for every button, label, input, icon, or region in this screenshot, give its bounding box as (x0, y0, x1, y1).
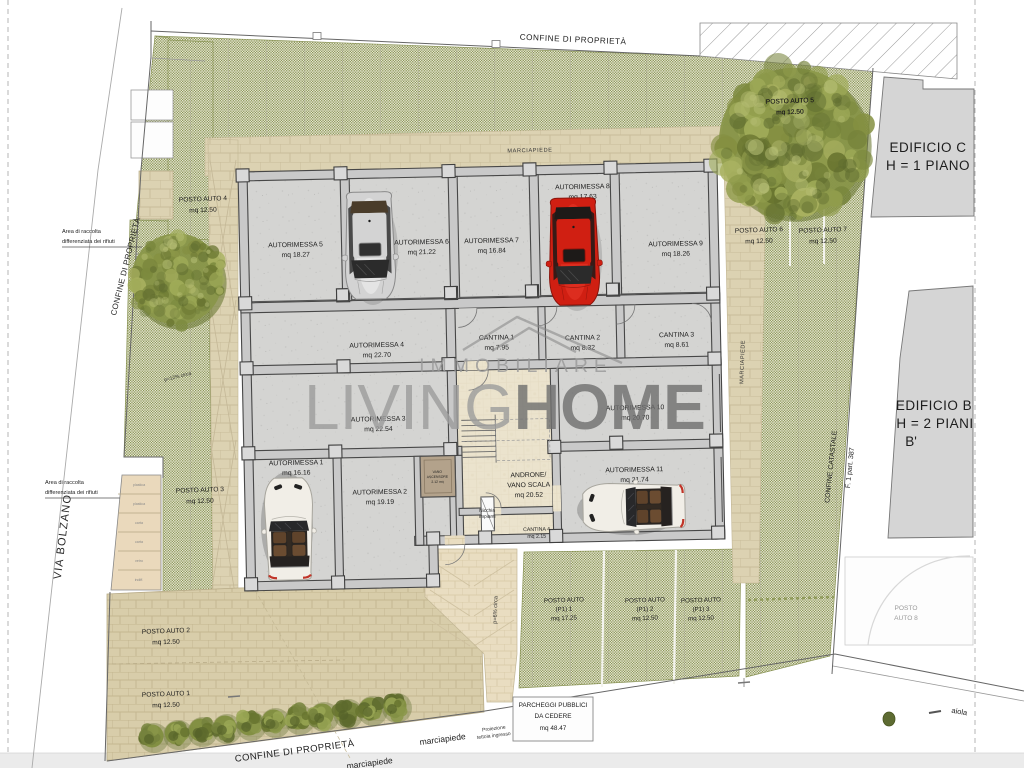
svg-text:differenziata dei rifiuti: differenziata dei rifiuti (45, 490, 98, 496)
svg-text:Area di raccolta: Area di raccolta (45, 480, 85, 486)
svg-text:AUTORIMESSA 7: AUTORIMESSA 7 (464, 237, 519, 245)
svg-text:carta: carta (135, 540, 143, 544)
svg-text:mq 21.22: mq 21.22 (407, 249, 436, 257)
svg-text:mq 48.47: mq 48.47 (540, 725, 567, 732)
svg-text:mq 2.15: mq 2.15 (527, 534, 546, 540)
svg-text:plastica: plastica (133, 502, 145, 506)
svg-text:CANTINA 3: CANTINA 3 (659, 331, 694, 339)
svg-text:mq 12.50: mq 12.50 (809, 238, 837, 246)
svg-text:mq 12.50: mq 12.50 (186, 498, 214, 506)
svg-text:carta: carta (135, 521, 143, 525)
svg-text:mq 8.61: mq 8.61 (664, 342, 689, 350)
svg-text:mq 22.70: mq 22.70 (363, 352, 392, 360)
svg-text:mq 12.50: mq 12.50 (152, 639, 180, 647)
svg-text:impianti: impianti (479, 514, 496, 520)
svg-text:plastica: plastica (133, 483, 145, 487)
svg-text:mq 12.50: mq 12.50 (745, 238, 773, 246)
svg-text:POSTO: POSTO (895, 605, 918, 612)
svg-text:B': B' (905, 434, 917, 449)
svg-text:mq 17.25: mq 17.25 (551, 615, 578, 623)
svg-text:ASCENSORE: ASCENSORE (427, 475, 449, 479)
svg-text:p=6% circa: p=6% circa (493, 595, 500, 624)
svg-text:mq 12.50: mq 12.50 (688, 615, 715, 623)
svg-text:differenziata dei rifiuti: differenziata dei rifiuti (62, 239, 115, 245)
svg-text:VANO SCALA: VANO SCALA (507, 482, 551, 490)
svg-text:PARCHEGGI PUBBLICI: PARCHEGGI PUBBLICI (519, 702, 588, 709)
svg-text:mq 12.50: mq 12.50 (152, 702, 180, 710)
svg-text:mq 19.19: mq 19.19 (366, 499, 395, 507)
svg-text:LIVINGHOME: LIVINGHOME (304, 371, 706, 443)
svg-text:AUTORIMESSA 11: AUTORIMESSA 11 (605, 466, 663, 474)
svg-text:(P1) 2: (P1) 2 (636, 606, 654, 614)
svg-text:EDIFICIO C: EDIFICIO C (889, 140, 966, 155)
svg-text:2.12 mq: 2.12 mq (431, 480, 443, 484)
svg-text:AUTO 8: AUTO 8 (894, 615, 918, 622)
svg-text:H = 1 PIANO: H = 1 PIANO (886, 158, 970, 173)
svg-text:AUTORIMESSA 9: AUTORIMESSA 9 (648, 240, 703, 248)
svg-text:AUTORIMESSA 6: AUTORIMESSA 6 (394, 239, 449, 247)
svg-text:mq 12.50: mq 12.50 (776, 109, 804, 117)
svg-text:DA CEDERE: DA CEDERE (535, 713, 572, 720)
svg-text:Nicchia: Nicchia (479, 508, 495, 514)
svg-text:vetro: vetro (135, 559, 143, 563)
svg-text:AUTORIMESSA 1: AUTORIMESSA 1 (269, 459, 324, 467)
svg-text:POSTO AUTO: POSTO AUTO (625, 596, 665, 604)
svg-text:mq 18.27: mq 18.27 (282, 252, 311, 260)
svg-text:mq 20.52: mq 20.52 (515, 492, 544, 500)
svg-text:indiff.: indiff. (135, 578, 144, 582)
svg-text:AUTORIMESSA 5: AUTORIMESSA 5 (268, 241, 323, 249)
svg-text:ANDRONE/: ANDRONE/ (510, 472, 546, 480)
svg-text:mq 12.50: mq 12.50 (632, 615, 659, 623)
svg-text:POSTO AUTO: POSTO AUTO (544, 596, 584, 604)
svg-text:CANTINA 4: CANTINA 4 (523, 527, 550, 534)
svg-text:mq 12.50: mq 12.50 (189, 207, 217, 215)
svg-text:AUTORIMESSA 8: AUTORIMESSA 8 (555, 183, 610, 191)
svg-text:(P1) 1: (P1) 1 (555, 606, 573, 614)
svg-text:EDIFICIO B: EDIFICIO B (896, 398, 972, 413)
svg-text:mq 16.84: mq 16.84 (477, 247, 506, 255)
svg-text:(P1) 3: (P1) 3 (692, 606, 710, 614)
svg-text:VANO: VANO (433, 470, 443, 474)
svg-text:POSTO AUTO: POSTO AUTO (681, 596, 721, 604)
svg-text:Area di raccolta: Area di raccolta (62, 229, 102, 235)
svg-text:H = 2 PIANI: H = 2 PIANI (896, 416, 973, 431)
svg-text:mq 18.26: mq 18.26 (662, 251, 691, 259)
svg-text:MARCIAPIEDE: MARCIAPIEDE (507, 147, 552, 154)
svg-text:AUTORIMESSA 2: AUTORIMESSA 2 (352, 489, 407, 497)
svg-text:AUTORIMESSA 4: AUTORIMESSA 4 (349, 342, 404, 350)
